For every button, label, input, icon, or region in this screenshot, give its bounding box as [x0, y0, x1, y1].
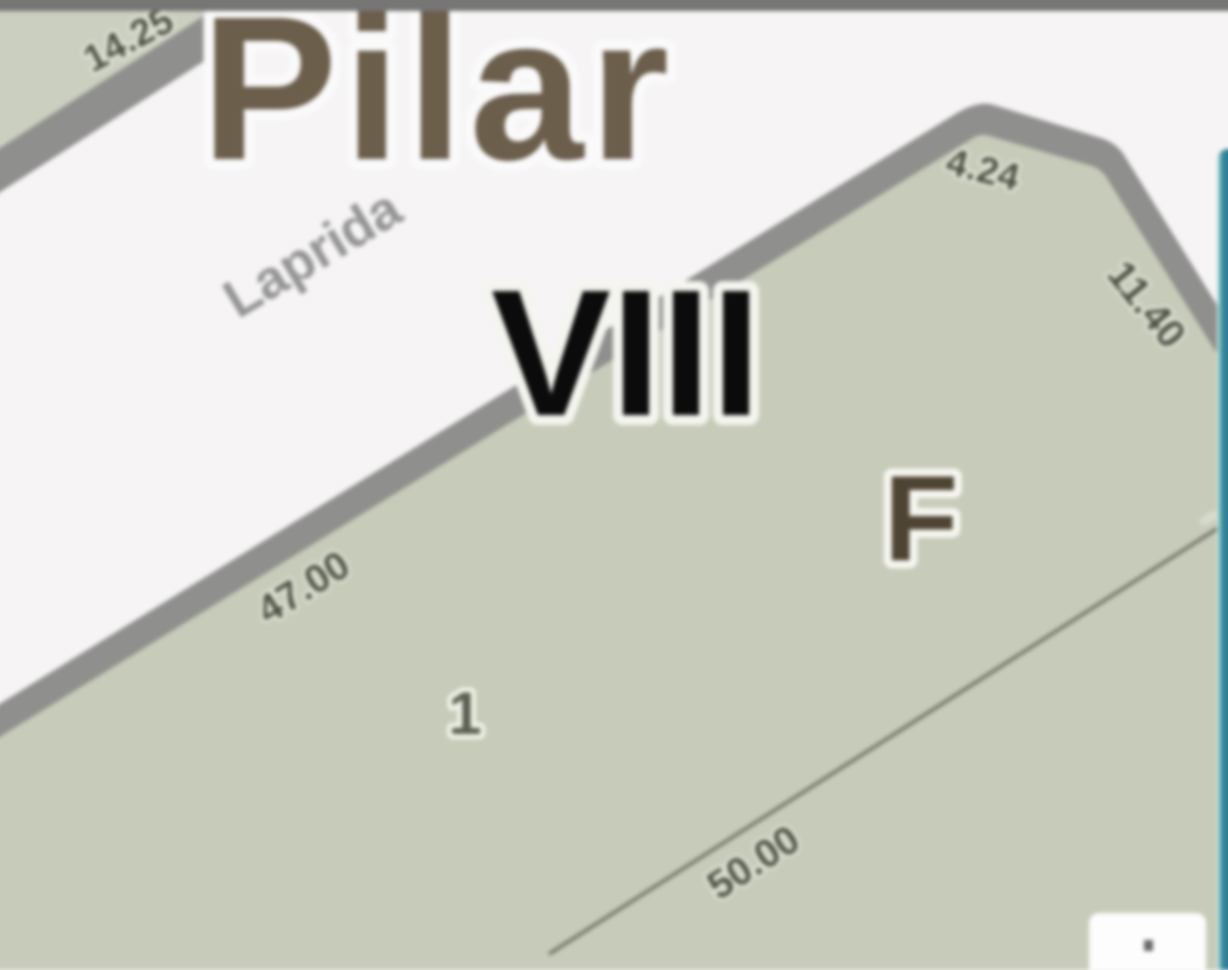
svg-text:VIII: VIII — [491, 253, 761, 454]
svg-text:1: 1 — [448, 680, 481, 747]
svg-text:Pilar: Pilar — [201, 0, 675, 203]
svg-text:F: F — [884, 450, 959, 586]
